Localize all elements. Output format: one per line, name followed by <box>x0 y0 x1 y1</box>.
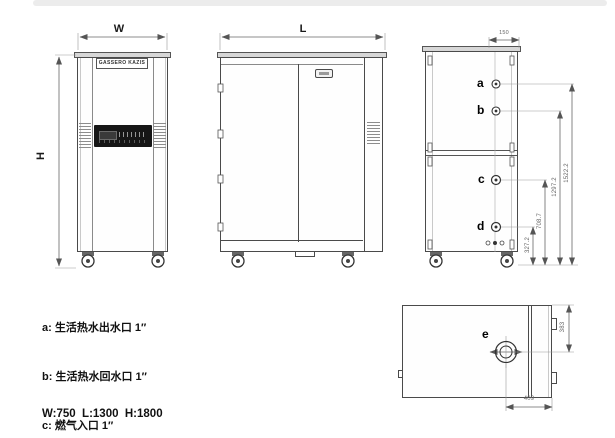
side-door-divider <box>298 64 299 242</box>
legend-line-a: a: 生活热水出水口 1″ <box>42 320 284 336</box>
dim-flue-y: 383 <box>560 307 566 347</box>
side-cabinet-body <box>220 57 383 252</box>
front-height-label: H <box>35 149 47 163</box>
front-vent-grille-right <box>154 123 166 149</box>
rear-mid-divider <box>426 150 517 156</box>
top-view-notch-upper <box>551 318 557 330</box>
front-cabinet-body <box>77 57 168 252</box>
dim-a-height: 1522.2 <box>564 153 570 193</box>
control-panel <box>94 125 152 147</box>
dim-d-height: 327.2 <box>525 225 531 265</box>
caster-icon <box>342 252 354 267</box>
caster-icon <box>82 252 94 267</box>
front-pillar-edge-right <box>165 58 166 251</box>
door-handle <box>315 69 333 78</box>
spec-dimensions: W:750 L:1300 H:1800 <box>42 405 163 424</box>
rear-offset-dim-label: 150 <box>489 30 519 36</box>
side-base-notch <box>295 252 315 257</box>
control-buttons <box>119 132 147 137</box>
dim-flue-x: 409 <box>509 396 549 402</box>
front-pillar-line-left <box>92 58 93 251</box>
spec-block: W:750 L:1300 H:1800 净重: 336 kg 运输重量: 401… <box>42 368 163 438</box>
side-door-top-line <box>221 64 363 65</box>
control-display <box>99 131 117 140</box>
top-view-front-edge-2 <box>531 306 532 397</box>
port-c-label: c <box>478 172 485 186</box>
caster-icon <box>501 252 513 267</box>
front-vent-grille-left <box>79 123 91 149</box>
port-a-label: a <box>477 76 484 90</box>
front-height-dimension <box>55 55 76 268</box>
control-indicator-row <box>99 140 147 143</box>
side-length-dimension <box>220 33 385 50</box>
front-pillar-edge-left <box>80 58 81 251</box>
top-border-strip <box>33 0 607 6</box>
top-view-body <box>402 305 552 398</box>
technical-drawing: W H GASSERO KAZIS L <box>0 0 615 438</box>
side-vent-grille <box>367 122 380 146</box>
front-width-label: W <box>104 23 134 35</box>
side-length-label: L <box>288 23 318 35</box>
caster-icon <box>232 252 244 267</box>
port-b-label: b <box>477 103 484 117</box>
caster-icon <box>152 252 164 267</box>
front-pillar-line-right <box>153 58 154 251</box>
top-view-front-edge-1 <box>528 306 529 397</box>
front-width-dimension <box>78 33 167 50</box>
side-base-strip <box>221 240 363 252</box>
dim-c-height: 708.7 <box>537 201 543 241</box>
top-view-left-tab <box>398 370 403 378</box>
port-d-label: d <box>477 219 484 233</box>
port-e-label: e <box>482 327 489 341</box>
caster-icon <box>430 252 442 267</box>
top-view-notch-lower <box>551 372 557 384</box>
brand-nameplate: GASSERO KAZIS <box>96 58 148 69</box>
top-view-inner-edge <box>548 306 549 397</box>
dim-b-height: 1297.2 <box>552 167 558 207</box>
side-right-column-line <box>364 58 365 251</box>
